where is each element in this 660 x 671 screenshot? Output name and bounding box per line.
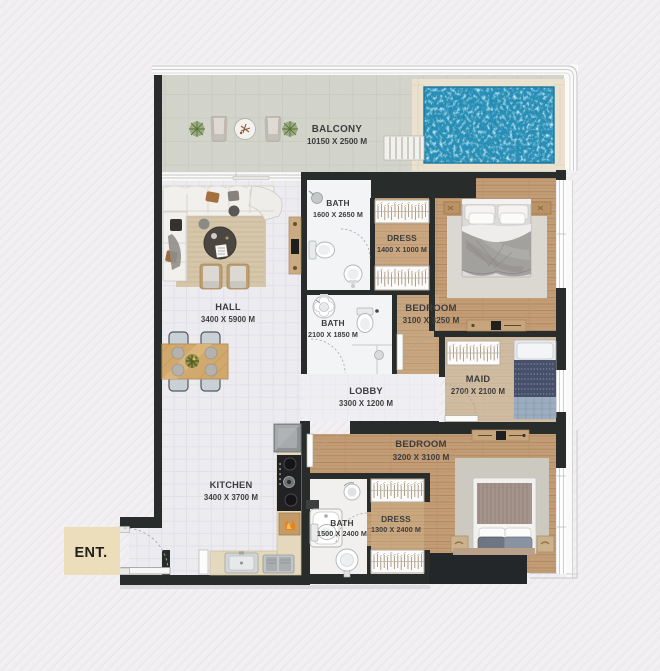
svg-text:1400 X 1000 M: 1400 X 1000 M: [377, 245, 427, 254]
svg-text:3400 X 3700 M: 3400 X 3700 M: [204, 493, 258, 502]
svg-text:1600 X 2650 M: 1600 X 2650 M: [313, 210, 363, 219]
svg-text:KITCHEN: KITCHEN: [210, 480, 253, 490]
svg-text:BATH: BATH: [326, 198, 349, 208]
svg-text:HALL: HALL: [215, 302, 241, 312]
svg-text:1500 X 2400 M: 1500 X 2400 M: [317, 529, 367, 538]
svg-text:3300 X 1200 M: 3300 X 1200 M: [339, 399, 393, 408]
svg-text:3400 X 5900 M: 3400 X 5900 M: [201, 315, 255, 324]
svg-text:LOBBY: LOBBY: [349, 386, 383, 396]
svg-text:BEDROOM: BEDROOM: [395, 439, 447, 450]
svg-text:BEDROOM: BEDROOM: [405, 303, 457, 314]
svg-text:DRESS: DRESS: [387, 233, 417, 243]
svg-text:MAID: MAID: [466, 374, 491, 384]
svg-text:BATH: BATH: [330, 518, 353, 528]
svg-text:3200 X 3100 M: 3200 X 3100 M: [393, 453, 450, 462]
svg-text:3100 X 3250 M: 3100 X 3250 M: [403, 316, 460, 325]
svg-text:ENT.: ENT.: [74, 545, 107, 561]
svg-text:BATH: BATH: [321, 318, 344, 328]
svg-text:DRESS: DRESS: [381, 514, 411, 524]
svg-text:10150 X 2500 M: 10150 X 2500 M: [307, 137, 367, 146]
svg-text:BALCONY: BALCONY: [312, 124, 363, 135]
svg-text:2100 X 1850 M: 2100 X 1850 M: [308, 330, 358, 339]
svg-text:1300 X 2400 M: 1300 X 2400 M: [371, 525, 421, 534]
